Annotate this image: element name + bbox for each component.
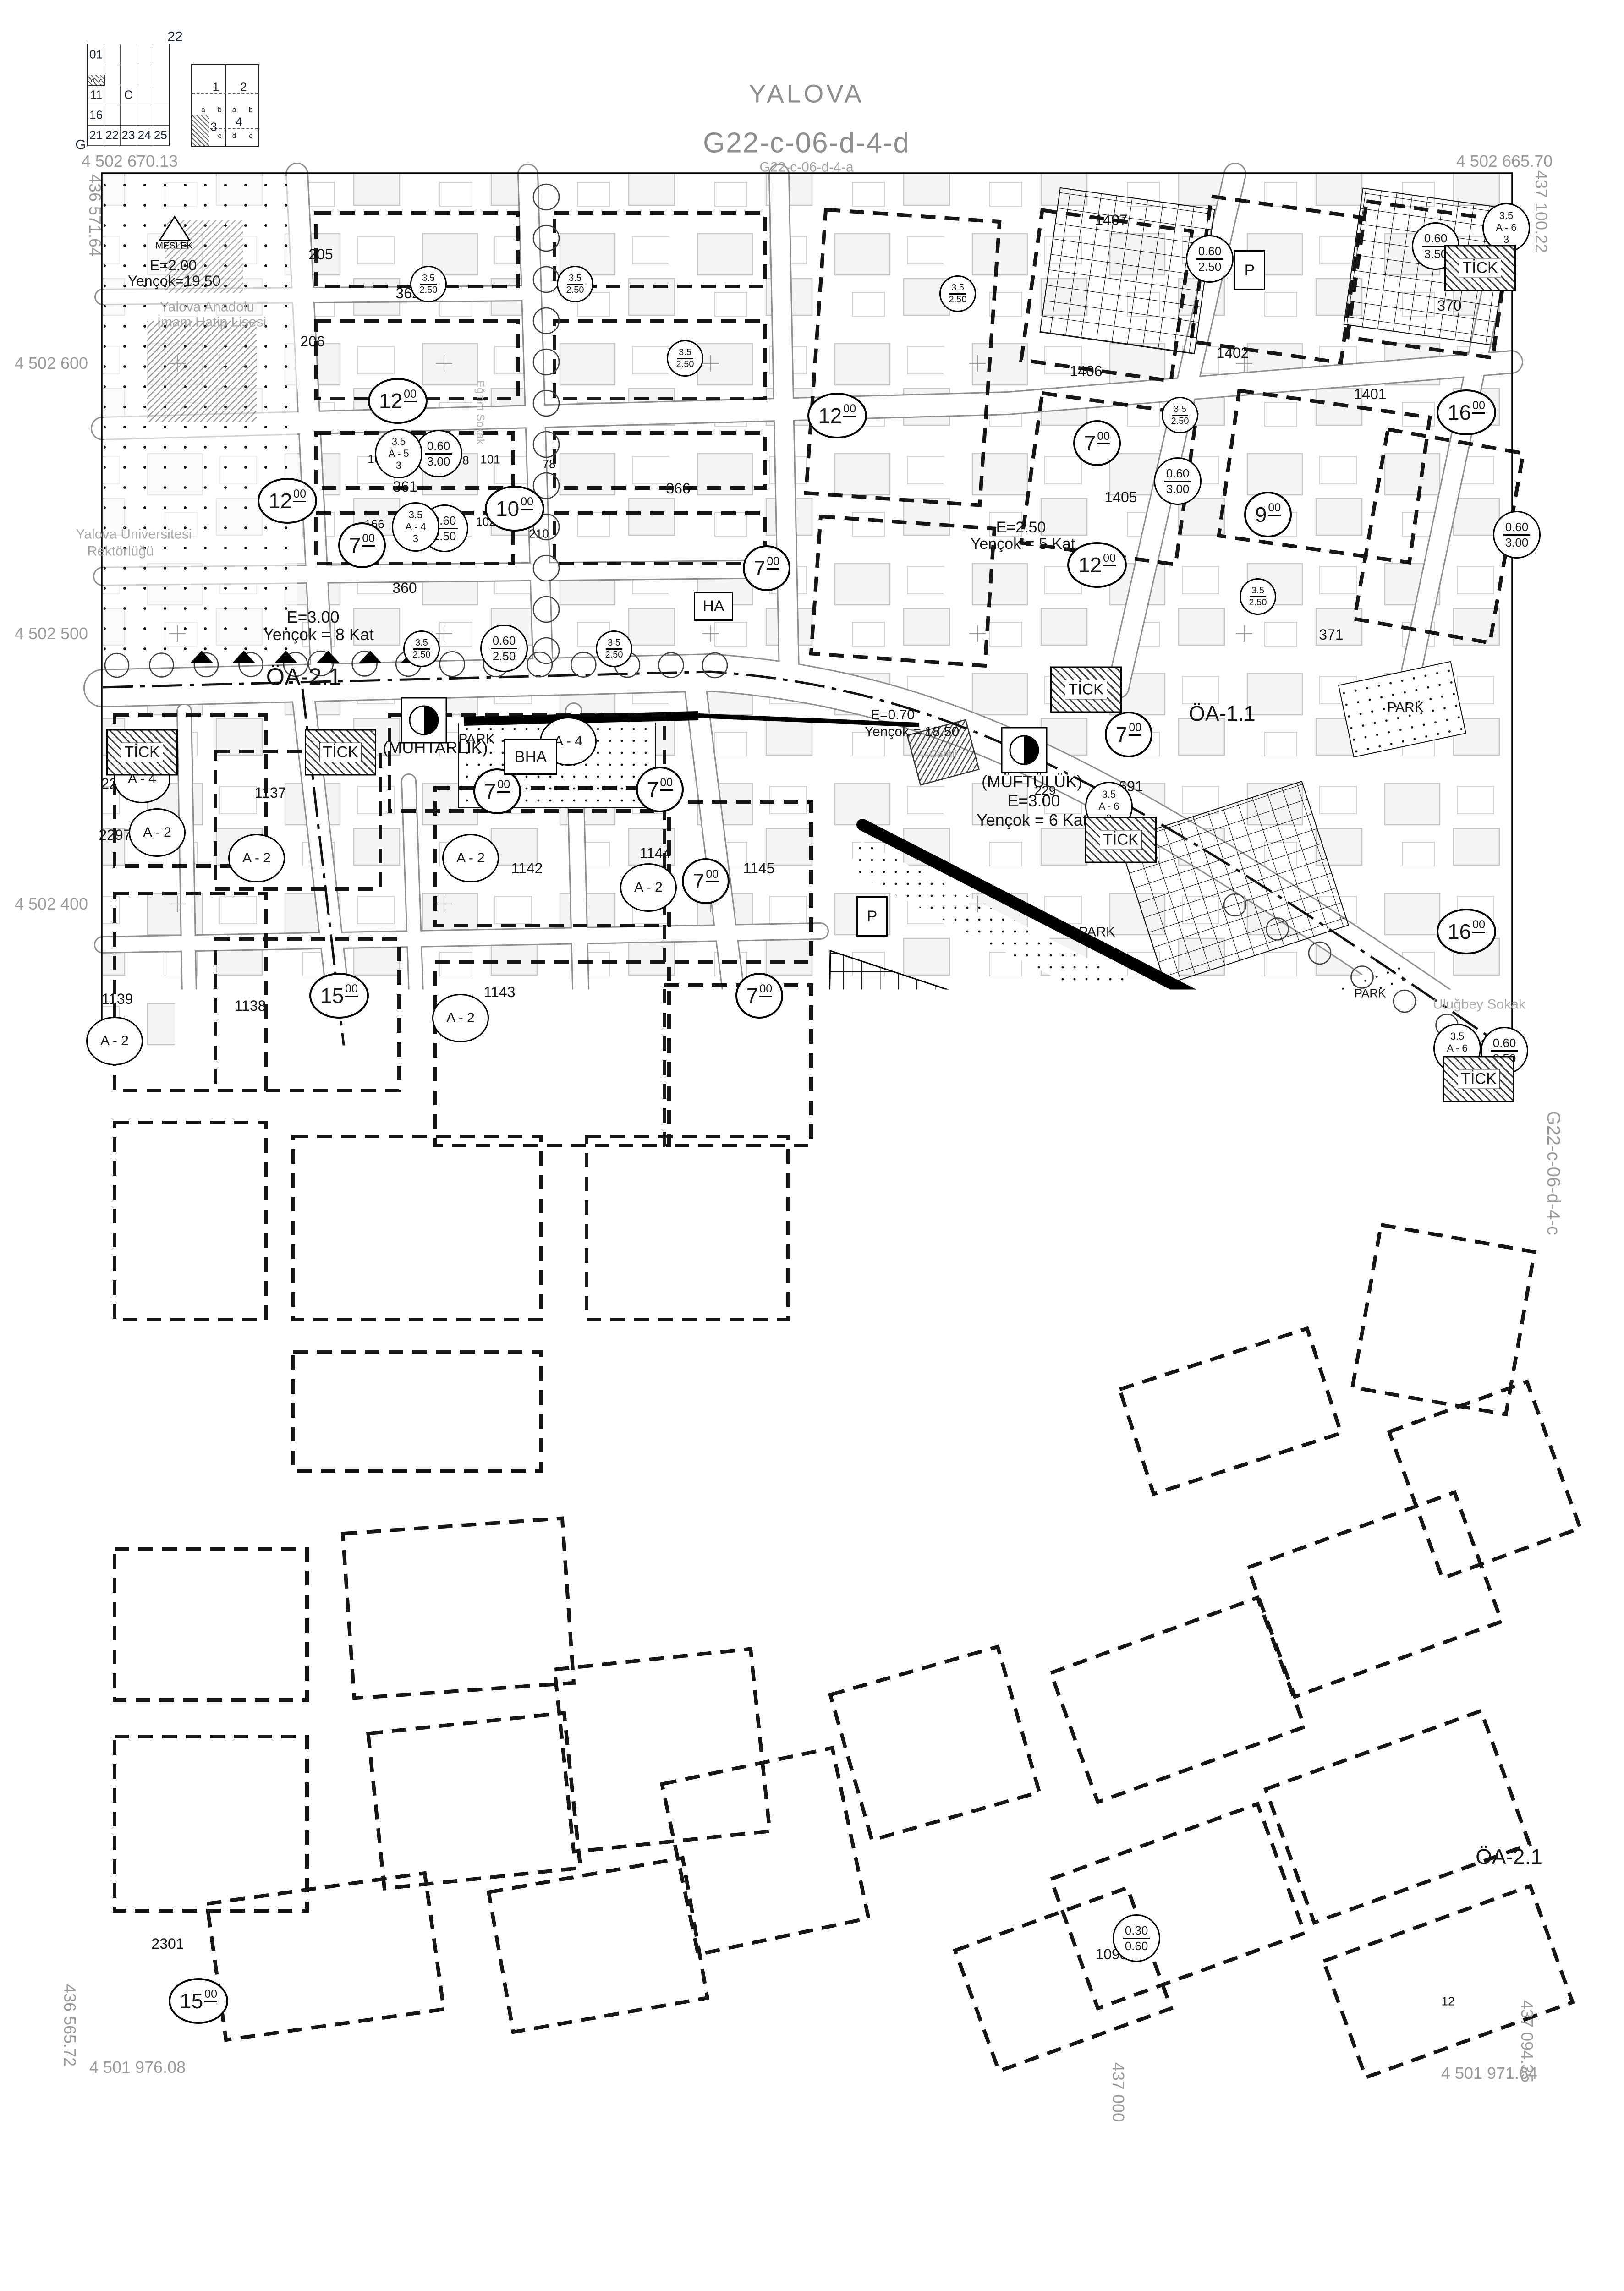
map-label: 370	[1437, 298, 1461, 314]
page-title: YALOVA	[749, 81, 864, 108]
ratio-bottom: 3.00	[427, 455, 450, 469]
road-width-decimals: 00	[938, 1509, 951, 1524]
footer-index-grid-2-hatch-cell	[157, 2224, 180, 2247]
ratio-bottom: 3.00	[1505, 536, 1529, 550]
zoning-ratio-circle: 0.300.60	[1253, 1797, 1301, 1844]
map-label: 2309	[1051, 1137, 1087, 1155]
road-width-circle: 1500	[169, 1978, 228, 2024]
map-label: E=0.70	[871, 707, 915, 722]
note-line: En Son Güncellenmiş TUTGA'ya Bağlı	[299, 2162, 476, 2176]
public-facility-symbol-box	[1001, 727, 1048, 773]
ratio-bottom: 3.50	[1424, 247, 1448, 261]
approval-block: ONAY Yalova İli Sınırları İçinde Fotogra…	[1247, 2134, 1597, 2291]
quad-grid-number: 3	[210, 121, 217, 133]
map-label: 210	[529, 527, 549, 540]
road-width-value: 15	[297, 1488, 321, 1513]
edge-coordinate-label: 4 502 600	[15, 355, 88, 372]
ratio-top: 3.5	[420, 273, 437, 285]
zone-box-label: TİCK	[1065, 680, 1107, 700]
pafta-index-mini-label: d	[91, 77, 94, 84]
ratio-top: 0.30	[1302, 1621, 1329, 1637]
map-label: 101	[480, 453, 500, 466]
ratio-top: 0.40	[1430, 1183, 1457, 1198]
ratio-bottom: 1.60	[1432, 1198, 1455, 1212]
road-width-decimals: 00	[1328, 1143, 1340, 1157]
road-width-decimals: 00	[521, 495, 533, 510]
edge-coordinate-label: 437 100.22	[1532, 170, 1550, 253]
road-width-value: 16	[1448, 919, 1471, 944]
pafta-index-current-cell: dc	[88, 75, 105, 86]
zone-circle: A - 2	[432, 994, 489, 1042]
map-label: 26	[928, 1468, 942, 1480]
ratio-bottom: 2.50	[676, 359, 694, 370]
map-label: PARK	[458, 732, 494, 746]
pafta-index-cell	[153, 85, 169, 105]
map-label: 1406	[1070, 364, 1102, 379]
coordinate-note-paragraph: Koordinatlar ve Pafta BölümlemesiEn Son …	[299, 2149, 476, 2215]
quad-grid-number: 2	[240, 81, 247, 93]
road-width-decimals: 00	[1213, 1888, 1226, 1903]
map-label: 205	[308, 247, 333, 263]
road-width-value: 7	[510, 1660, 521, 1685]
quad-grid-letter: a	[201, 107, 205, 115]
edge-coordinate-label: 4 502 400	[15, 895, 88, 913]
map-label: 1116	[728, 1225, 758, 1241]
map-label: 16	[1323, 1375, 1337, 1387]
ratio-top: 0.60	[491, 634, 518, 649]
road-width-value: 10	[1318, 1526, 1341, 1551]
zone-triple-line: 3.5	[392, 436, 406, 448]
road-width-decimals: 00	[1097, 430, 1110, 444]
road-width-value: 10	[191, 1365, 214, 1390]
zone-circle: A - 2	[414, 1405, 471, 1453]
pafta-index-mini-label: c	[99, 77, 102, 84]
half-circle-icon	[1010, 735, 1039, 765]
ratio-bottom: 2.50	[1249, 597, 1267, 608]
ratio-bottom: 3.00	[1166, 482, 1190, 496]
ratio-bottom: 2.50	[413, 650, 431, 660]
map-label: 1407	[1095, 213, 1127, 228]
production-note-paragraph: Ağustos 2015 Tarihinde Çekilen RenkliHav…	[299, 2235, 469, 2291]
map-label: 360	[392, 581, 417, 596]
ratio-top: 3.5	[413, 638, 430, 650]
map-label: 1102	[565, 1901, 596, 1917]
adjacent-sheet-top: G22-c-06-d-4-a	[759, 160, 853, 175]
zoning-ratio-circle: 3.52.50	[557, 266, 593, 302]
zone-triple-line: A - 6	[1496, 222, 1516, 234]
pafta-index-cell	[104, 105, 121, 126]
road-width-circle: 1200	[1067, 542, 1127, 588]
edge-coordinate-label: 4 502 300	[15, 1166, 88, 1183]
zone-circle: A - 2	[228, 834, 285, 882]
map-canvas	[0, 0, 1624, 2291]
zoning-ratio-circle: 0.602.50	[1186, 235, 1234, 283]
ratio-bottom: 2.50	[493, 649, 516, 663]
map-label: Yençok = 5 Kat	[971, 536, 1075, 553]
zoning-ratio-circle: 3.52.50	[939, 275, 976, 312]
map-label: 1405	[1104, 490, 1137, 505]
quad-grid-letter: d	[232, 132, 236, 140]
map-label: 1104	[629, 2002, 660, 2017]
pafta-index-cell	[137, 65, 153, 85]
zone-circle: A - 2	[620, 863, 677, 912]
pafta-index-cell-label: 16	[89, 109, 103, 121]
map-label: (ARMAGAZ)	[1268, 1392, 1361, 1409]
map-label: 1140	[97, 1258, 129, 1274]
road-width-value: 17	[1443, 1488, 1466, 1513]
pafta-index-cell	[120, 105, 137, 126]
road-width-value: 16	[1448, 400, 1471, 425]
zone-triple-line: A - 6	[1098, 800, 1119, 812]
half-circle-icon	[1286, 1356, 1316, 1386]
zoning-ratio-circle: 0.401.60	[1420, 1173, 1467, 1221]
zoning-ratio-circle: 3.52.50	[1240, 578, 1276, 615]
road-width-decimals: 00	[858, 1869, 871, 1883]
zone-circle: A - 2	[1385, 1407, 1442, 1456]
ratio-bottom: 0.60	[1304, 1637, 1327, 1651]
road-width-circle: 700	[1073, 420, 1121, 466]
edge-coordinate-label: 4 502 670.13	[82, 153, 178, 170]
road-width-value: 12	[379, 389, 402, 413]
pafta-index-cell	[153, 105, 169, 126]
road-width-decimals: 00	[1140, 1514, 1152, 1529]
edge-coordinate-label: 4 502 100	[15, 1706, 88, 1724]
pafta-index-cell	[104, 85, 121, 105]
road-width-value: 7	[647, 777, 659, 802]
edge-coordinate-label: 436 565.72	[61, 1984, 78, 2066]
map-label: 1101	[718, 1694, 750, 1709]
note-line: Yüklenici Firma: Kuzey Mühendislik	[299, 2288, 469, 2291]
half-circle-icon	[409, 706, 439, 735]
pafta-index-cell	[104, 65, 121, 85]
zone-box: HA	[694, 592, 733, 621]
map-label: PARK	[1387, 700, 1423, 715]
map-label: 16	[866, 1378, 879, 1391]
ratio-bottom: 2.50	[605, 650, 623, 660]
road-width-decimals: 00	[404, 388, 417, 402]
quad-grid-letter: a	[232, 107, 236, 115]
ratio-top: 3.5	[567, 273, 583, 285]
road-width-circle: 700	[473, 768, 521, 814]
road-width-value: 7	[473, 1561, 485, 1586]
road-width-decimals: 00	[215, 1365, 228, 1379]
quad-grid-dashline	[192, 93, 258, 94]
road-width-circle: 1200	[807, 393, 867, 438]
road-width-value: 12	[818, 403, 842, 428]
road-width-circle: 700	[1105, 712, 1152, 757]
map-label: 1145	[743, 861, 775, 877]
map-label: 30	[907, 1396, 920, 1408]
zone-circle: A - 2	[461, 1781, 517, 1830]
map-label: 2302	[300, 1808, 333, 1824]
road-width-value: 12	[913, 1510, 937, 1535]
road-width-value: 12	[269, 488, 292, 513]
map-label: 1113	[370, 1422, 401, 1438]
road-width-value: 17	[1303, 1144, 1326, 1168]
road-width-value: 9	[1255, 502, 1267, 527]
pafta-index-cell	[104, 44, 121, 65]
road-width-circle: 1200	[425, 1362, 485, 1408]
road-width-value: 7	[484, 779, 496, 804]
road-width-decimals: 00	[1129, 721, 1141, 736]
zone-triple-line: 3	[1503, 234, 1509, 246]
road-width-circle: 1200	[902, 1500, 962, 1546]
road-width-value: 7	[754, 556, 766, 581]
map-label: 1109	[581, 1620, 612, 1636]
pafta-index-cell-label: 22	[105, 129, 119, 141]
map-label: E=1.00	[986, 1195, 1042, 1213]
zoning-ratio-circle: 0.401.20	[1426, 1305, 1474, 1353]
map-label: Eğitim Sokak	[474, 380, 486, 444]
sheet-number: G22-c-06-d-4-d	[703, 128, 910, 158]
zone-circle: A - 2	[1186, 1570, 1243, 1618]
ratio-top: 0.60	[1491, 1036, 1518, 1052]
zoning-ratio-circle: 3.52.50	[410, 266, 447, 302]
ratio-top: 0.60	[1503, 520, 1531, 536]
zone-triple-circle: 3.5A - 53	[375, 429, 422, 478]
zone-circle: A - 2	[199, 1247, 256, 1296]
road-width-decimals: 00	[344, 1911, 357, 1926]
parking-box: P	[1234, 250, 1265, 290]
map-label: 1100	[209, 1501, 241, 1517]
ratio-top: 0.30	[1264, 1806, 1291, 1821]
footer-index-grid-2	[156, 2177, 206, 2248]
road-width-decimals: 00	[1268, 501, 1281, 516]
map-label: 1401	[1354, 387, 1386, 402]
map-label: 1402	[1216, 345, 1249, 361]
ratio-top: 0.60	[1196, 244, 1223, 260]
ratio-top: 0.40	[1437, 1314, 1464, 1330]
ratio-top: 3.5	[1250, 586, 1266, 597]
note-line: Düzenlenmiştir.	[299, 2202, 476, 2215]
map-label: 1137	[255, 785, 286, 801]
ratio-bottom: 0.60	[1266, 1821, 1289, 1836]
road-width-decimals: 00	[767, 555, 779, 570]
pafta-index-grid: 0111C162122232425dc	[87, 44, 170, 146]
map-label: 28	[718, 1369, 731, 1381]
note-line: Yapılar Saçak Çizgileriyle Gösterilmişti…	[299, 2262, 469, 2275]
quad-grid-number: 1	[213, 81, 219, 93]
road-width-decimals: 00	[1472, 399, 1485, 414]
map-label: PARK	[447, 1125, 479, 1137]
road-width-circle: 1500	[309, 973, 369, 1019]
zone-box: TİCK	[1085, 817, 1157, 863]
road-width-decimals: 00	[362, 532, 375, 547]
map-label: E=3.00	[286, 608, 339, 626]
road-width-circle: 1700	[1432, 1477, 1492, 1523]
parking-box: P	[1267, 1167, 1299, 1207]
ratio-top: 0.60	[1422, 231, 1449, 247]
road-width-decimals: 00	[345, 982, 358, 997]
quad-grid-letter: b	[218, 107, 222, 115]
road-width-decimals: 00	[976, 1361, 989, 1376]
road-width-circle: 700	[735, 973, 783, 1019]
zone-box: TİCK	[1443, 1056, 1514, 1102]
zone-circle: A - 3	[1329, 1246, 1386, 1294]
edge-coordinate-label: 436 900	[905, 2062, 923, 2122]
map-label: 361	[393, 479, 417, 495]
road-width-decimals: 00	[293, 488, 306, 502]
zone-box: BHA	[369, 1653, 416, 1684]
zone-box: T	[994, 1141, 1041, 1196]
zone-triple-circle: 3.5A - 43	[392, 502, 439, 552]
road-width-circle: 1200	[933, 1813, 992, 1859]
road-width-circle: 1200	[1104, 1505, 1163, 1551]
zone-box: TİCK	[106, 729, 178, 776]
map-label: 1110	[709, 1561, 740, 1576]
zone-box-label: TİCK	[1459, 258, 1501, 278]
zone-circle: A - 2	[902, 1580, 959, 1629]
road-width-value: 7	[1084, 431, 1096, 455]
ratio-top: 0.60	[425, 439, 452, 455]
zone-box-label: TİCK	[121, 743, 163, 762]
map-label: 2297	[99, 828, 131, 843]
road-width-decimals: 00	[759, 982, 772, 997]
road-width-decimals: 00	[322, 1487, 335, 1502]
quad-grid-number: 4	[236, 115, 242, 128]
footer-index-grid-1-hatch-cell	[85, 2197, 99, 2213]
map-label: 11	[1292, 1456, 1305, 1469]
map-label: Yençok=19.50	[128, 274, 221, 289]
map-label: ÖA-2.1	[266, 665, 342, 690]
road-width-circle: 700	[438, 1195, 485, 1240]
pafta-index-cell	[137, 105, 153, 126]
road-width-decimals: 00	[660, 776, 673, 791]
road-width-decimals: 00	[1472, 918, 1485, 933]
map-label: 206	[300, 334, 324, 350]
zone-circle: A - 2	[132, 1799, 189, 1847]
road-width-circle: 1000	[485, 486, 544, 532]
edge-coordinate-label: 437 094.35	[1518, 2000, 1536, 2083]
quad-grid-vline	[225, 65, 226, 146]
zone-box: TİCK	[1444, 245, 1516, 291]
road-width-circle: 700	[499, 1650, 546, 1695]
map-label: 2299	[163, 1629, 195, 1645]
road-width-circle: 1600	[1437, 909, 1496, 954]
road-width-value: 15	[180, 1989, 203, 2013]
pafta-index-cell	[137, 85, 153, 105]
ratio-top: 3.5	[606, 638, 622, 650]
road-width-circle: 900	[1244, 492, 1292, 537]
footer-index-grid-1	[84, 2162, 145, 2248]
road-width-value: 12	[436, 1373, 460, 1398]
map-label: 14	[1365, 1411, 1378, 1423]
approval-signatures	[1248, 2135, 1597, 2291]
road-width-circle: 1200	[258, 478, 317, 524]
zone-triple-line: A - 6	[1447, 1042, 1467, 1054]
ratio-bottom: 1.20	[1439, 1330, 1462, 1344]
road-width-value: 15	[320, 983, 344, 1008]
road-width-value: 12	[834, 1869, 857, 1894]
road-width-circle: 700	[462, 1551, 510, 1596]
map-label: Yençok = 6 Kat	[977, 811, 1087, 829]
road-width-value: 7	[746, 983, 758, 1008]
zone-box: TİCK	[305, 729, 376, 776]
note-line: Ağustos 2015 Tarihinde Çekilen Renkli	[299, 2235, 469, 2248]
zone-circle: A - 2	[86, 1017, 143, 1065]
ratio-bottom: 2.50	[949, 295, 967, 305]
road-width-decimals: 00	[461, 1082, 474, 1096]
pafta-quadrant-grid: 1234abdcabdc	[191, 64, 259, 147]
road-width-circle: 1200	[823, 1859, 882, 1905]
half-circle-icon	[806, 1395, 835, 1425]
map-label: MESLEK	[155, 241, 192, 251]
pafta-index-cell-label: 21	[89, 129, 103, 141]
road-width-circle: 700	[743, 545, 790, 591]
map-label: 1138	[235, 998, 266, 1014]
public-facility-symbol-box	[797, 1387, 844, 1433]
ratio-top: 3.5	[949, 283, 966, 295]
road-width-decimals: 00	[497, 778, 510, 793]
road-width-value: 7	[349, 533, 361, 558]
parking-box: P	[439, 1831, 471, 1872]
ratio-bottom: 2.50	[566, 285, 584, 296]
zone-triple-line: 3.5	[1102, 789, 1116, 800]
zone-circle: A - 2	[442, 834, 499, 882]
zone-box: ◇◆◇	[706, 1996, 770, 2061]
road-width-decimals: 00	[461, 1372, 474, 1387]
map-label: E=2.50	[996, 520, 1046, 536]
map-label: 1111	[866, 1584, 895, 1599]
map-label: (KARAKOL)	[789, 1431, 878, 1449]
zone-circle: A - 2	[129, 808, 186, 857]
zone-triple-line: A - 5	[388, 448, 409, 460]
pafta-index-cell	[137, 44, 153, 65]
zone-box-label: TİCK	[1100, 830, 1141, 850]
road-width-circle: 1600	[1437, 389, 1496, 435]
road-width-decimals: 00	[706, 868, 719, 882]
road-width-circle: 700	[338, 522, 386, 568]
zone-circle: A - 2	[1300, 1420, 1357, 1469]
note-line: Transversal Mercator (TM) İzdüşümünde,	[299, 2189, 476, 2202]
pafta-index-cell	[153, 65, 169, 85]
zoning-ratio-circle: 3.52.50	[1162, 397, 1198, 433]
map-label: E=2.00	[150, 258, 197, 274]
project-manager-signature	[568, 2222, 715, 2277]
zoning-ratio-circle: 0.300.60	[1113, 1914, 1160, 1962]
road-width-decimals: 00	[1294, 1721, 1306, 1735]
road-width-decimals: 00	[461, 1204, 474, 1219]
ratio-top: 0.30	[1123, 1924, 1150, 1939]
zone-box-label: TİCK	[1458, 1069, 1499, 1089]
road-width-circle: 1200	[1258, 1711, 1317, 1757]
edge-coordinate-label: 436 700	[500, 2062, 517, 2122]
zone-circle: A - 2	[927, 1759, 984, 1808]
road-width-decimals: 00	[204, 1988, 217, 2002]
road-width-value: 10	[951, 1362, 975, 1387]
map-label: ÖA-2.1	[1476, 1846, 1542, 1868]
road-width-value: 7	[1116, 722, 1128, 747]
pafta-index-cell	[120, 44, 137, 65]
zone-triple-line: 3.5	[1499, 210, 1514, 222]
road-width-value: 7	[693, 869, 705, 893]
road-width-decimals: 00	[1468, 1487, 1481, 1502]
road-width-value: 10	[496, 496, 519, 521]
pafta-index-cell-label: 23	[122, 129, 135, 141]
ratio-bottom: 0.60	[1125, 1939, 1148, 1953]
edge-coordinate-label: 4 502 200	[15, 1436, 88, 1453]
edge-coordinate-label: 436 600	[296, 2062, 313, 2122]
map-label: 2301	[151, 1936, 184, 1952]
road-width-value: 7	[449, 1205, 461, 1230]
adjacent-sheet-bottom: G22-c-11-a-1-a	[712, 2061, 835, 2081]
edge-coordinate-label: 4 501 976.08	[89, 2059, 186, 2076]
zone-triple-line: 3.5	[1450, 1030, 1465, 1042]
scale-label: 1/1000	[734, 2138, 824, 2169]
map-label: Yençok = 8 Kat	[263, 626, 374, 643]
road-width-circle: 700	[438, 1072, 485, 1118]
road-width-circle: 1000	[1307, 1515, 1366, 1561]
